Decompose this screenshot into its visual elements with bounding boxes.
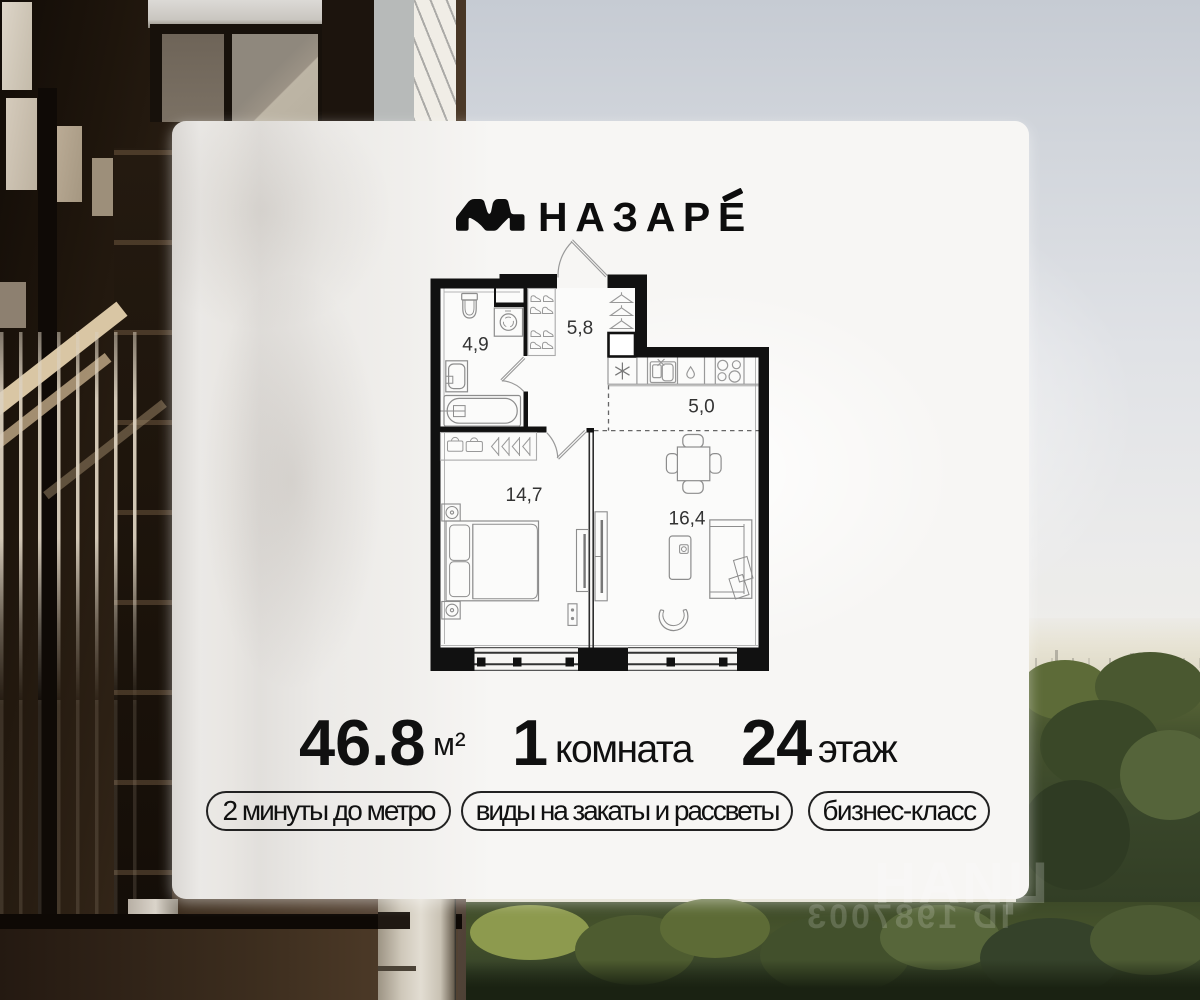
svg-text:4,9: 4,9: [462, 335, 488, 356]
svg-text:14,7: 14,7: [506, 485, 543, 506]
svg-text:16,4: 16,4: [669, 509, 706, 530]
svg-text:5,8: 5,8: [567, 318, 593, 339]
svg-text:5,0: 5,0: [688, 397, 714, 418]
